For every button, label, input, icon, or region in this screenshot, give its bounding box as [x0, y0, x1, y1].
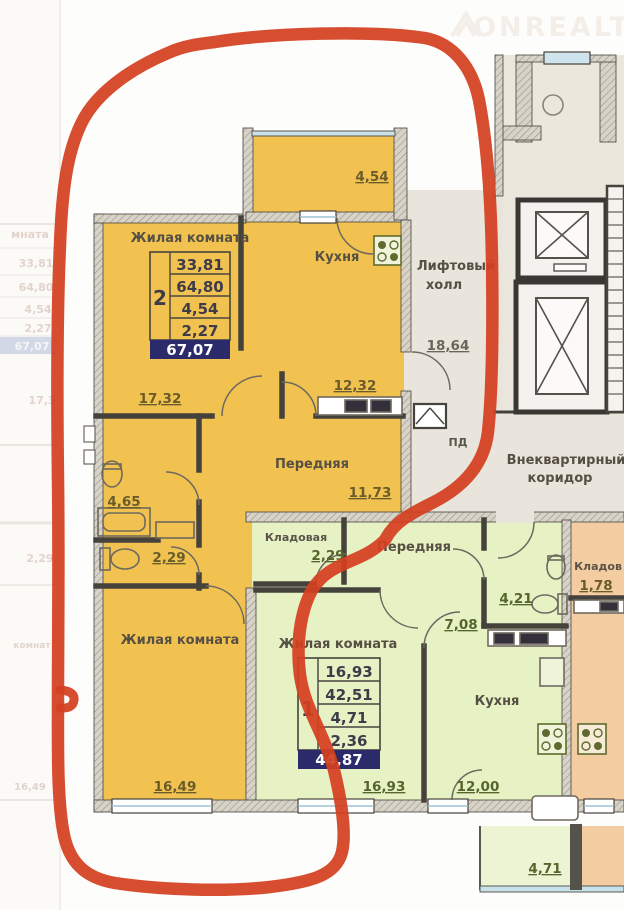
door-gap — [496, 511, 534, 523]
room-label-hall-apt2: Передняя — [275, 457, 349, 472]
dim-living2-apt2: 16,49 — [154, 779, 197, 795]
dim-hall-apt2: 11,73 — [349, 485, 392, 501]
preview-row: 4,54 — [24, 303, 51, 316]
preview-row: 64,80 — [19, 281, 54, 294]
apartment1-balcony-area — [480, 826, 580, 892]
dim-bath-apt1: 4,21 — [499, 591, 532, 607]
table-cell: 4,71 — [330, 709, 367, 727]
preview-row: 33,81 — [19, 257, 54, 270]
room-label-kitchen-apt1: Кухня — [475, 694, 520, 709]
watermark: ONREALT — [452, 12, 624, 43]
dim-living-apt1: 16,93 — [363, 779, 406, 795]
left-preview-strip: мната 33,81 64,80 4,54 2,27 67,07 17,3 2… — [0, 0, 60, 910]
dim-balcony-apt1: 4,71 — [528, 861, 561, 877]
fire-cabinet-label: ПД — [448, 436, 467, 449]
balcony-glazing-top — [252, 131, 395, 136]
left-strip-bg — [0, 0, 60, 910]
table-cell: 2,27 — [181, 322, 218, 340]
fire-cabinet — [414, 404, 446, 428]
room-label-storage-apt1: Кладовая — [265, 531, 327, 544]
dim-storage-neighbor: 1,78 — [579, 578, 612, 594]
dim-kitchen-apt1: 12,00 — [457, 779, 500, 795]
stove-icon — [374, 236, 401, 265]
apartment2-rooms-count: 2 — [153, 286, 167, 310]
stove-icon — [538, 724, 566, 754]
preview-fragment: комнат — [13, 641, 51, 651]
preview-total: 67,07 — [15, 340, 50, 353]
stairs — [607, 186, 624, 412]
stove-icon — [578, 724, 606, 754]
floorplan-screenshot: мната 33,81 64,80 4,54 2,27 67,07 17,3 2… — [0, 0, 624, 910]
dim-elevator-hall: 18,64 — [427, 338, 470, 354]
apartment2-total-area: 67,07 — [166, 341, 213, 359]
preview-dim: 2,29 — [26, 552, 53, 565]
entrance-door — [544, 52, 590, 64]
sink-icon — [540, 658, 564, 686]
elevator-hall-label-2: холл — [426, 278, 462, 293]
kitchen-counter — [532, 796, 578, 820]
dim-wc-apt2: 2,29 — [152, 550, 185, 566]
watermark-text: ONREALT — [473, 12, 624, 43]
dim-living1-apt2: 17,32 — [139, 391, 182, 407]
room-label-kitchen: Кухня — [315, 250, 360, 265]
corridor-label-1: Внеквартирный — [507, 453, 624, 468]
table-cell: 33,81 — [176, 256, 223, 274]
corridor-label-2: коридор — [528, 471, 593, 486]
table-cell: 16,93 — [325, 663, 372, 681]
table-cell: 42,51 — [325, 686, 372, 704]
neighbor-balcony-area — [582, 826, 624, 892]
dim-balcony-apt2: 4,54 — [355, 169, 388, 185]
table-cell: 64,80 — [176, 278, 223, 296]
preview-dim: 16,49 — [14, 782, 46, 793]
room-label-living1: Жилая комната — [131, 231, 250, 246]
preview-row: 2,27 — [24, 322, 51, 335]
preview-header-fragment: мната — [11, 228, 49, 241]
table-cell: 4,54 — [181, 300, 218, 318]
room-label-living2: Жилая комната — [121, 633, 240, 648]
dim-hall-apt1: 7,08 — [444, 617, 477, 633]
floor-plan-svg: мната 33,81 64,80 4,54 2,27 67,07 17,3 2… — [0, 0, 624, 910]
room-label-storage-neighbor: Кладов — [574, 560, 622, 573]
table-cell: 2,36 — [330, 732, 367, 750]
dim-kitchen-apt2: 12,32 — [334, 378, 377, 394]
elevator-hall-label-1: Лифтовый — [417, 259, 495, 274]
dim-bath-apt2: 4,65 — [107, 494, 140, 510]
